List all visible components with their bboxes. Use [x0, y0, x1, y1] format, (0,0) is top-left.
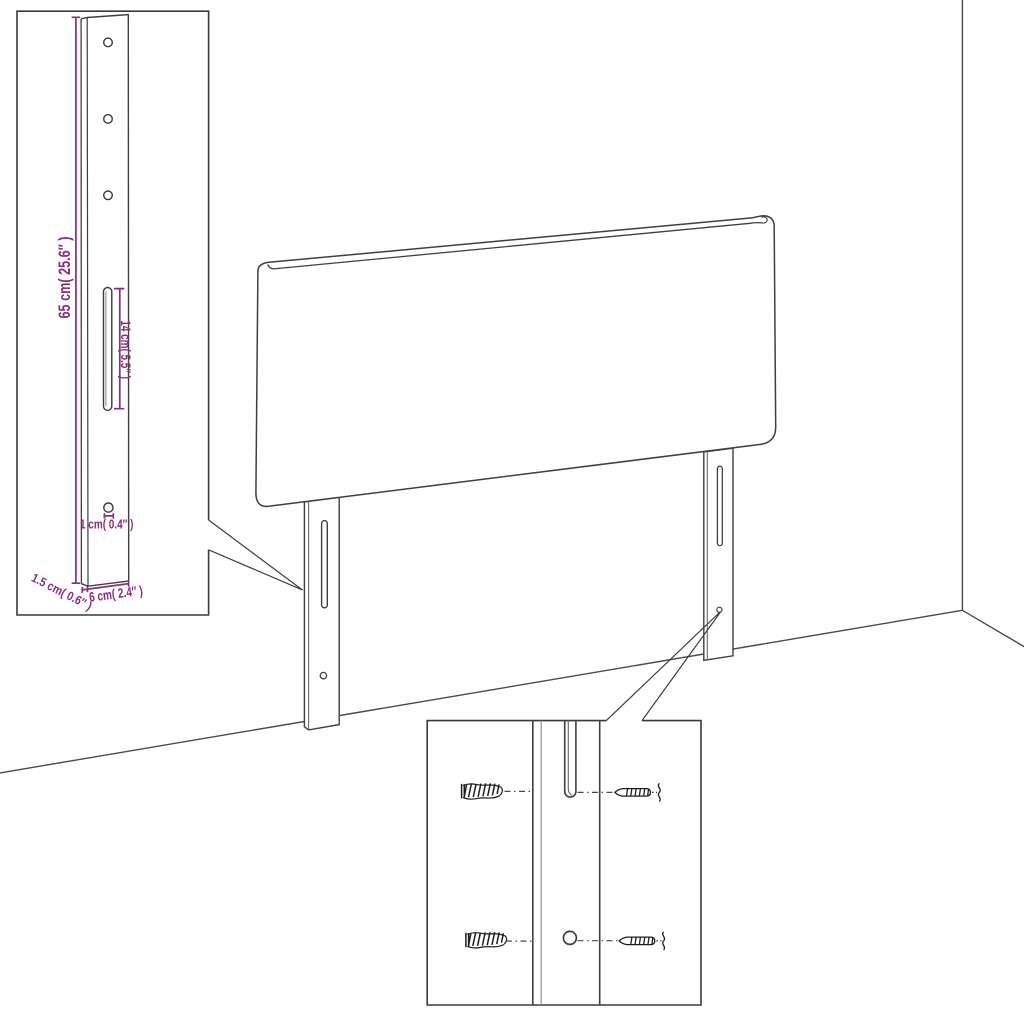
svg-text:14 cm( 5.5″ ): 14 cm( 5.5″ ) — [118, 320, 134, 379]
svg-text:65 cm( 25.6″ ): 65 cm( 25.6″ ) — [56, 237, 74, 319]
svg-text:1 cm( 0.4″ ): 1 cm( 0.4″ ) — [80, 517, 134, 531]
